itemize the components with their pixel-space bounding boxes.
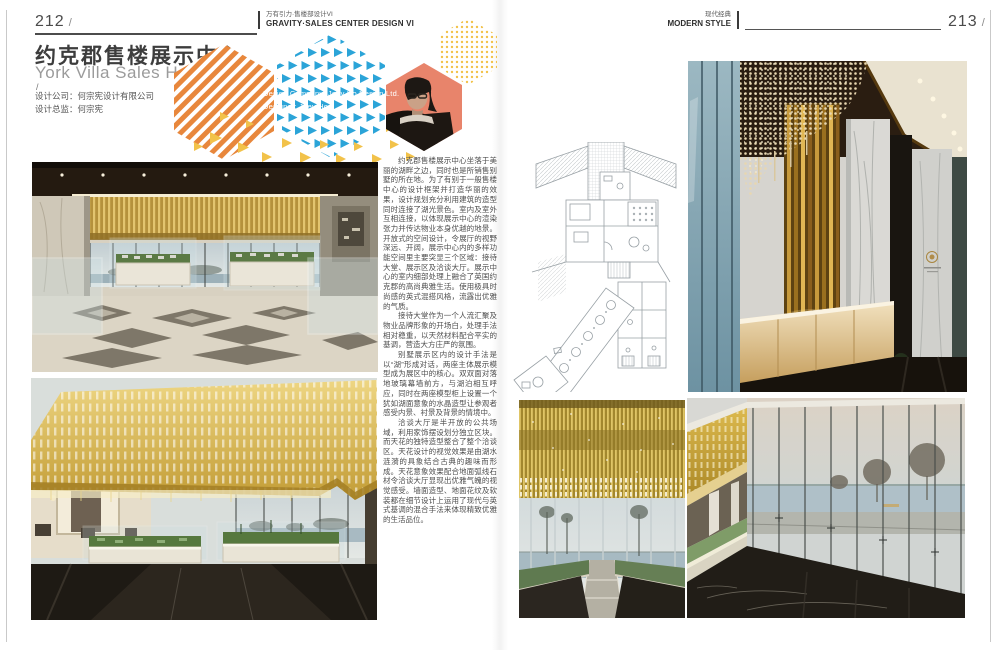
photo-gold-ceiling-lake xyxy=(519,400,685,618)
page-number-left-slash: / xyxy=(69,17,73,29)
category-title-en: MODERN STYLE xyxy=(655,19,731,29)
photo-gold-canopy-hall xyxy=(31,378,377,620)
page-number-right-slash: / xyxy=(982,17,986,29)
page-number-left: 212/ xyxy=(35,13,73,31)
category-title-cn: 现代经典 xyxy=(655,11,731,19)
book-spread: 212/ 万有引力·售楼部设计VI GRAVITY·SALES CENTER D… xyxy=(0,0,999,650)
overlay-credit-designer: Designer: Joey Ho xyxy=(263,100,399,113)
body-paragraph-4: 洽谈大厅是半开放的公共场域，利用家饰摆设划分独立区块。而天花的独特造型整合了整个… xyxy=(383,418,497,525)
body-paragraph-3: 别墅展示区内的设计手法是以“湖”形成对话，两座主体展示模型成为展区中的核心。双双… xyxy=(383,350,497,418)
category-header: 现代经典 MODERN STYLE xyxy=(655,11,739,29)
overlay-credit-company: Design Company: Joey Ho Design Ltd. xyxy=(263,87,399,100)
body-paragraph-1: 约克郡售楼展示中心坐落于美丽的湖畔之边，同时也是所销售别墅的所在地。为了有别于一… xyxy=(383,156,497,311)
header-rule-right xyxy=(745,29,941,30)
overlay-credits: Design Company: Joey Ho Design Ltd. Desi… xyxy=(263,87,399,113)
credits-block: 设计公司：何宗宪设计有限公司 设计总监：何宗宪 xyxy=(35,90,154,115)
floor-plan-drawing xyxy=(508,142,690,392)
credit-director: 设计总监：何宗宪 xyxy=(35,103,154,116)
article-body-column: 约克郡售楼展示中心坐落于美丽的湖畔之边，同时也是所销售别墅的所在地。为了有别于一… xyxy=(383,156,497,638)
yellow-dotted-hexagon xyxy=(439,20,497,85)
photo-glass-corridor xyxy=(687,398,965,618)
photo-reception-hall xyxy=(688,61,967,392)
credit-company: 设计公司：何宗宪设计有限公司 xyxy=(35,90,154,103)
body-paragraph-2: 接待大堂作为一个人流汇聚及物业品牌形象的开场白，处理手法相对稳重，以天然材料配合… xyxy=(383,311,497,350)
photo-display-hall xyxy=(32,162,378,372)
orange-striped-hexagon xyxy=(174,44,274,160)
series-title-cn: 万有引力·售楼部设计VI xyxy=(266,11,414,19)
page-number-right: 213/ xyxy=(948,13,986,31)
right-page-edge-line xyxy=(990,10,991,642)
left-page-edge-line xyxy=(6,10,7,642)
